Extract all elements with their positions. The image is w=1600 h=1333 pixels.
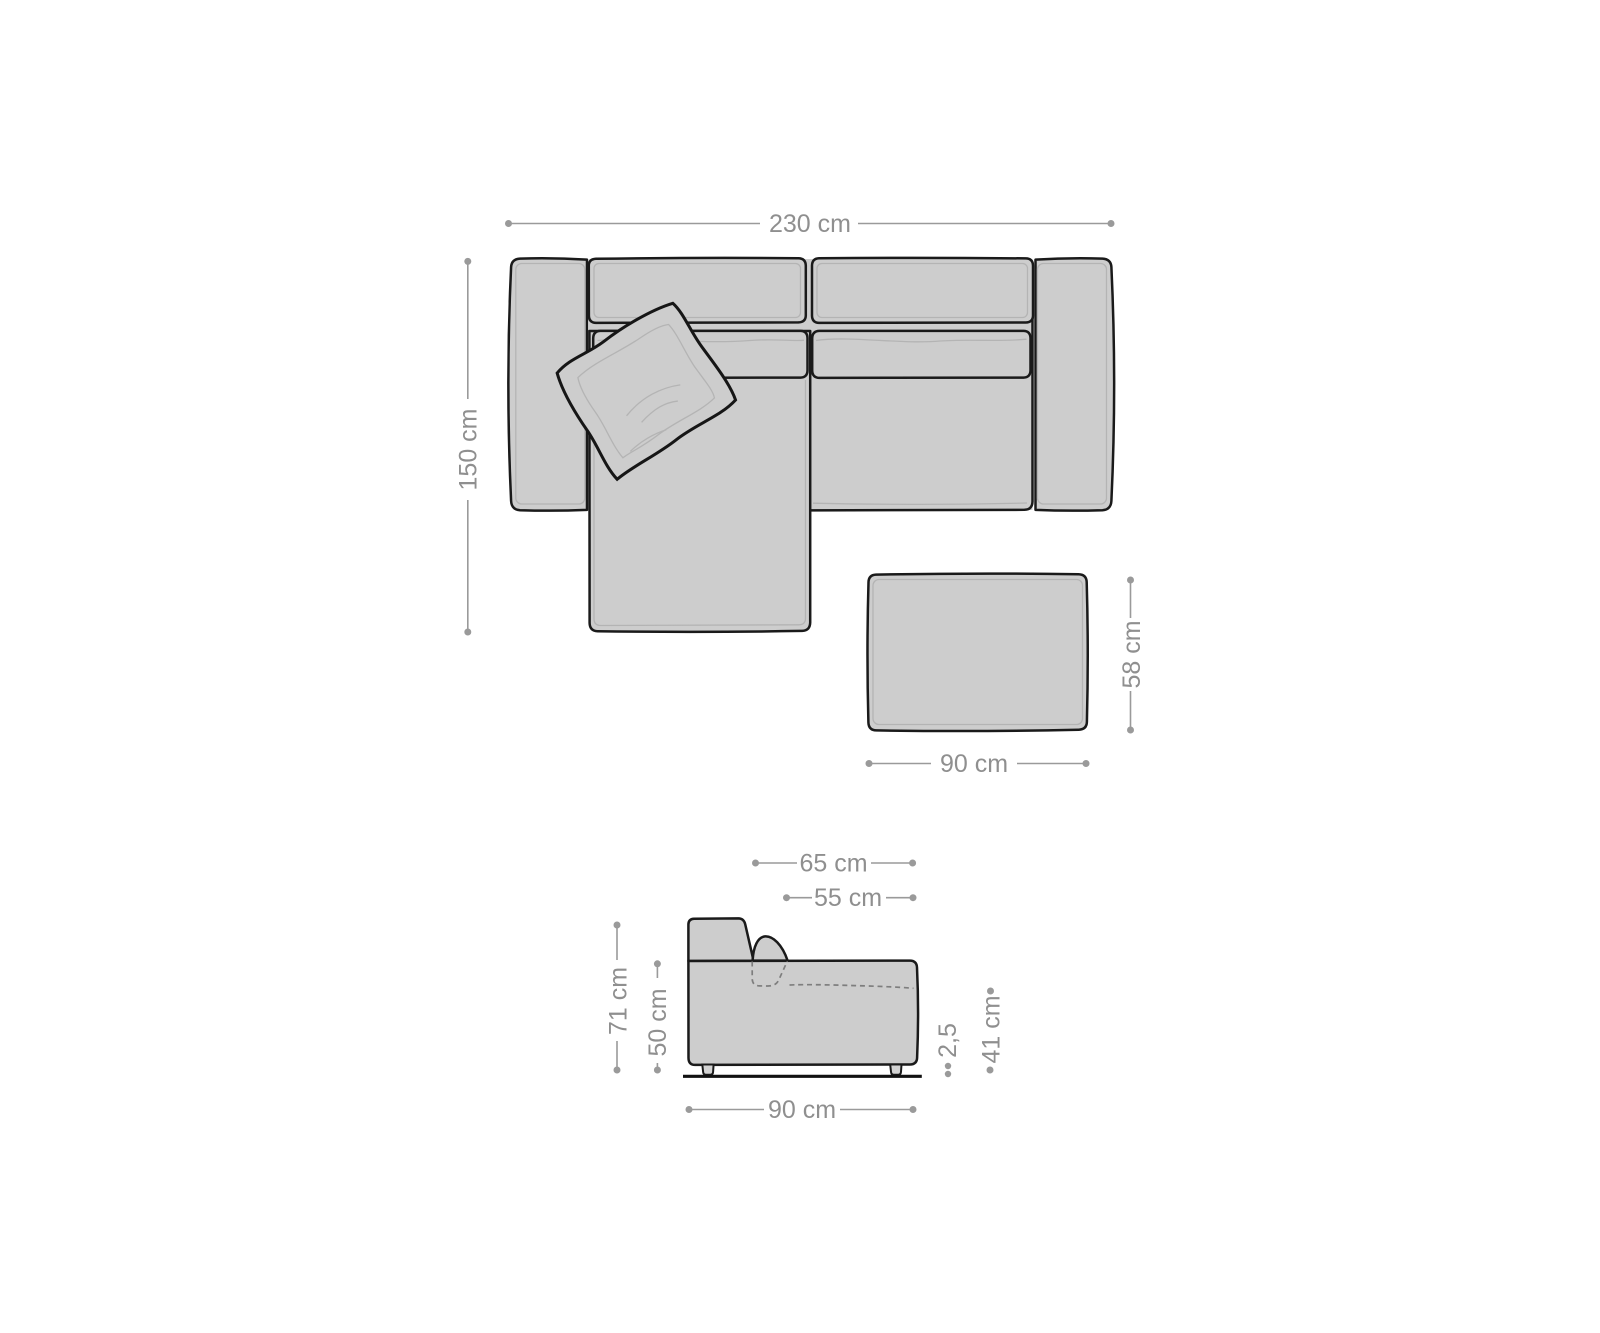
svg-text:50 cm: 50 cm (644, 988, 672, 1056)
svg-text:90 cm: 90 cm (940, 750, 1008, 778)
svg-text:71 cm: 71 cm (605, 967, 633, 1035)
svg-text:150 cm: 150 cm (454, 409, 482, 491)
svg-text:41 cm: 41 cm (978, 995, 1006, 1063)
svg-text:90 cm: 90 cm (768, 1096, 836, 1124)
svg-text:230 cm: 230 cm (769, 210, 851, 238)
svg-text:2,5: 2,5 (934, 1023, 962, 1058)
svg-text:65 cm: 65 cm (799, 850, 867, 878)
svg-text:55 cm: 55 cm (814, 884, 882, 912)
svg-text:58 cm: 58 cm (1118, 620, 1146, 688)
